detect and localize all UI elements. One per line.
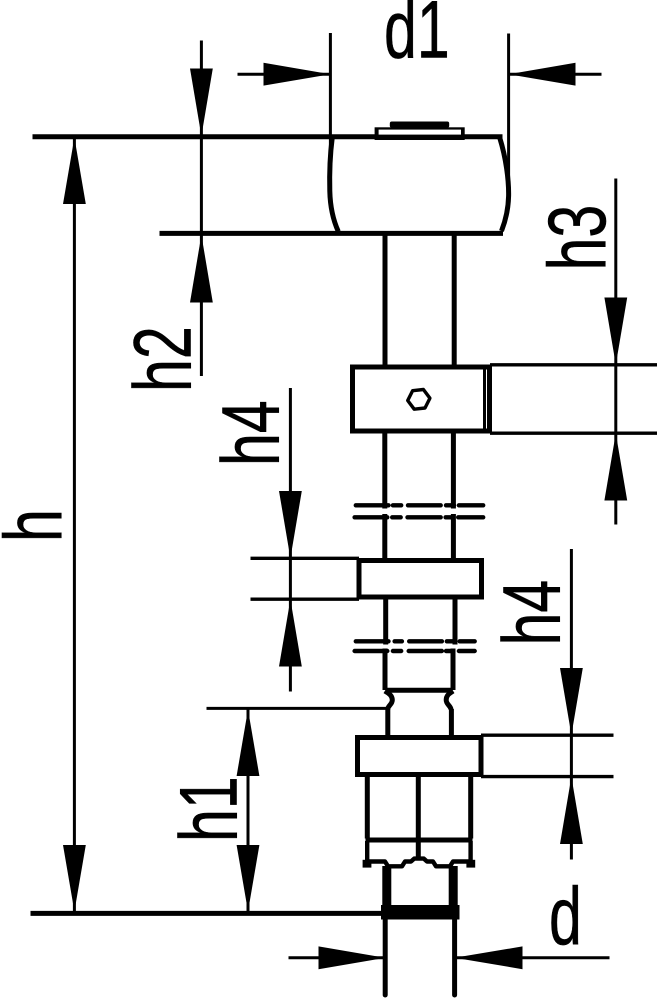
- svg-text:h: h: [0, 509, 79, 542]
- svg-text:h2: h2: [117, 326, 209, 392]
- svg-text:h3: h3: [532, 205, 624, 271]
- svg-text:h4: h4: [486, 580, 578, 646]
- svg-text:h4: h4: [205, 400, 297, 466]
- svg-text:d: d: [549, 871, 582, 963]
- svg-text:d1: d1: [384, 0, 450, 76]
- svg-text:h1: h1: [163, 776, 255, 842]
